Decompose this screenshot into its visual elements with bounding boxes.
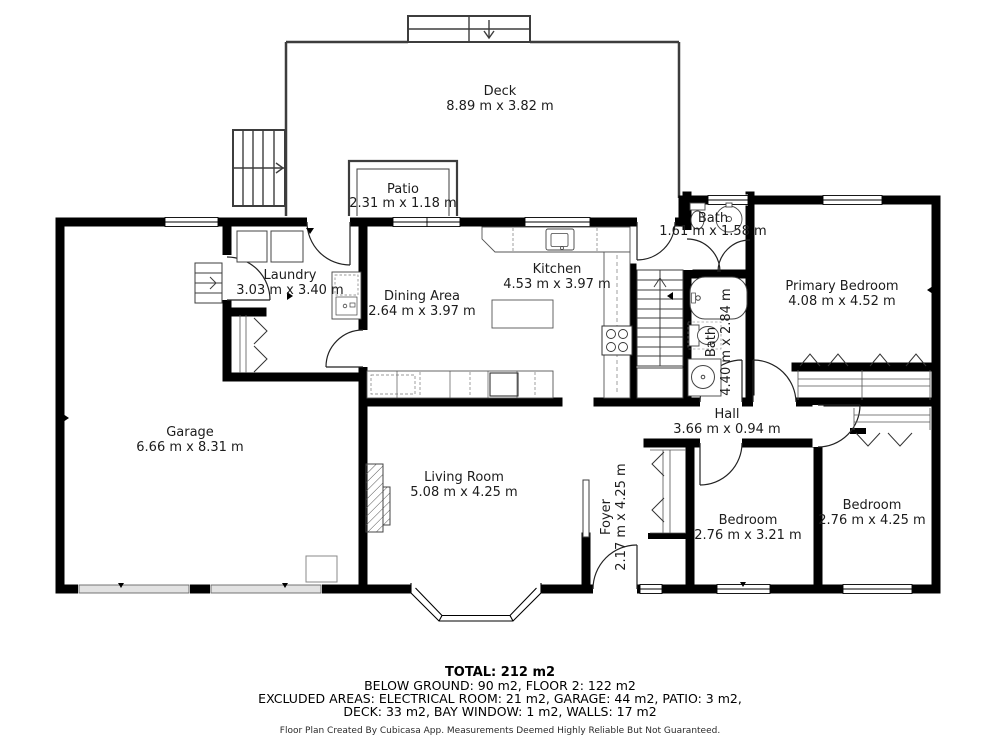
garage-steps: [195, 263, 222, 303]
room-label-living: Living Room: [424, 470, 504, 485]
room-dims-living: 5.08 m x 4.25 m: [410, 485, 517, 500]
room-label-patio: Patio: [387, 182, 419, 197]
washer: [237, 231, 267, 262]
laundry-closet: [240, 315, 267, 373]
bedroom2-window: [843, 585, 912, 594]
kitchen-sink: [546, 229, 574, 250]
room-label-bedroom1: Bedroom: [719, 513, 778, 528]
room-label-primary: Primary Bedroom: [785, 279, 898, 294]
floor-plan-drawing: Deck 8.89 m x 3.82 m Patio 2.31 m x 1.18…: [0, 0, 1000, 750]
garage-window: [165, 218, 218, 227]
room-label-kitchen: Kitchen: [533, 262, 582, 277]
room-dims-bedroom2: 2.76 m x 4.25 m: [818, 513, 925, 528]
bedroom2-closet: [854, 408, 930, 446]
room-dims-bath-big: 4.40 m x 2.84 m: [719, 288, 734, 395]
room-dims-bedroom1: 2.76 m x 3.21 m: [694, 528, 801, 543]
primary-bedroom-window: [823, 196, 882, 205]
room-label-bath-big: Bath: [704, 327, 719, 357]
deck-top-steps: [408, 16, 530, 42]
dryer: [271, 231, 303, 262]
room-label-bedroom2: Bedroom: [843, 498, 902, 513]
kitchen-island: [492, 300, 553, 328]
summary-line4: DECK: 33 m2, BAY WINDOW: 1 m2, WALLS: 17…: [343, 704, 656, 719]
room-label-garage: Garage: [166, 425, 214, 440]
room-label-dining: Dining Area: [384, 289, 460, 304]
bedroom1-door: [700, 443, 742, 485]
bay-window: [411, 583, 541, 622]
room-dims-hall: 3.66 m x 0.94 m: [673, 422, 780, 437]
laundry-fixtures: [237, 231, 361, 373]
room-dims-foyer: 2.17 m x 4.25 m: [614, 463, 629, 570]
room-label-deck: Deck: [484, 84, 517, 99]
room-dims-bath-small: 1.61 m x 1.58 m: [659, 224, 766, 239]
deck-outline: [286, 42, 679, 216]
room-label-hall: Hall: [715, 407, 740, 422]
primary-closets: [798, 354, 930, 400]
room-dims-kitchen: 4.53 m x 3.97 m: [503, 277, 610, 292]
foyer-railing: [583, 480, 589, 537]
laundry-dining-door: [326, 330, 363, 367]
room-dims-garage: 6.66 m x 8.31 m: [136, 440, 243, 455]
room-dims-patio: 2.31 m x 1.18 m: [349, 196, 456, 211]
kitchen-sink-window: [525, 218, 590, 227]
room-label-foyer: Foyer: [599, 498, 614, 535]
room-dims-laundry: 3.03 m x 3.40 m: [236, 283, 343, 298]
fireplace: [366, 464, 390, 532]
summary-disclaimer: Floor Plan Created By Cubicasa App. Meas…: [280, 726, 720, 736]
area-summary: TOTAL: 212 m2 BELOW GROUND: 90 m2, FLOOR…: [258, 665, 742, 736]
floor-plan-page: Deck 8.89 m x 3.82 m Patio 2.31 m x 1.18…: [0, 0, 1000, 750]
front-door-sidelight: [640, 585, 662, 594]
kitchen-double-window: [393, 218, 460, 227]
foyer-closet: [650, 450, 686, 533]
water-heater: [306, 556, 337, 582]
deck-side-stairs: [233, 130, 285, 206]
main-staircase: [637, 270, 683, 398]
bath-vanity: [688, 359, 721, 396]
room-dims-primary: 4.08 m x 4.52 m: [788, 294, 895, 309]
room-label-laundry: Laundry: [264, 268, 317, 283]
stove: [602, 326, 632, 355]
room-dims-dining: 2.64 m x 3.97 m: [368, 304, 475, 319]
room-dims-deck: 8.89 m x 3.82 m: [446, 99, 553, 114]
kitchen-bottom-counter: [367, 371, 553, 398]
bath-vestibule-doors: [687, 239, 750, 272]
